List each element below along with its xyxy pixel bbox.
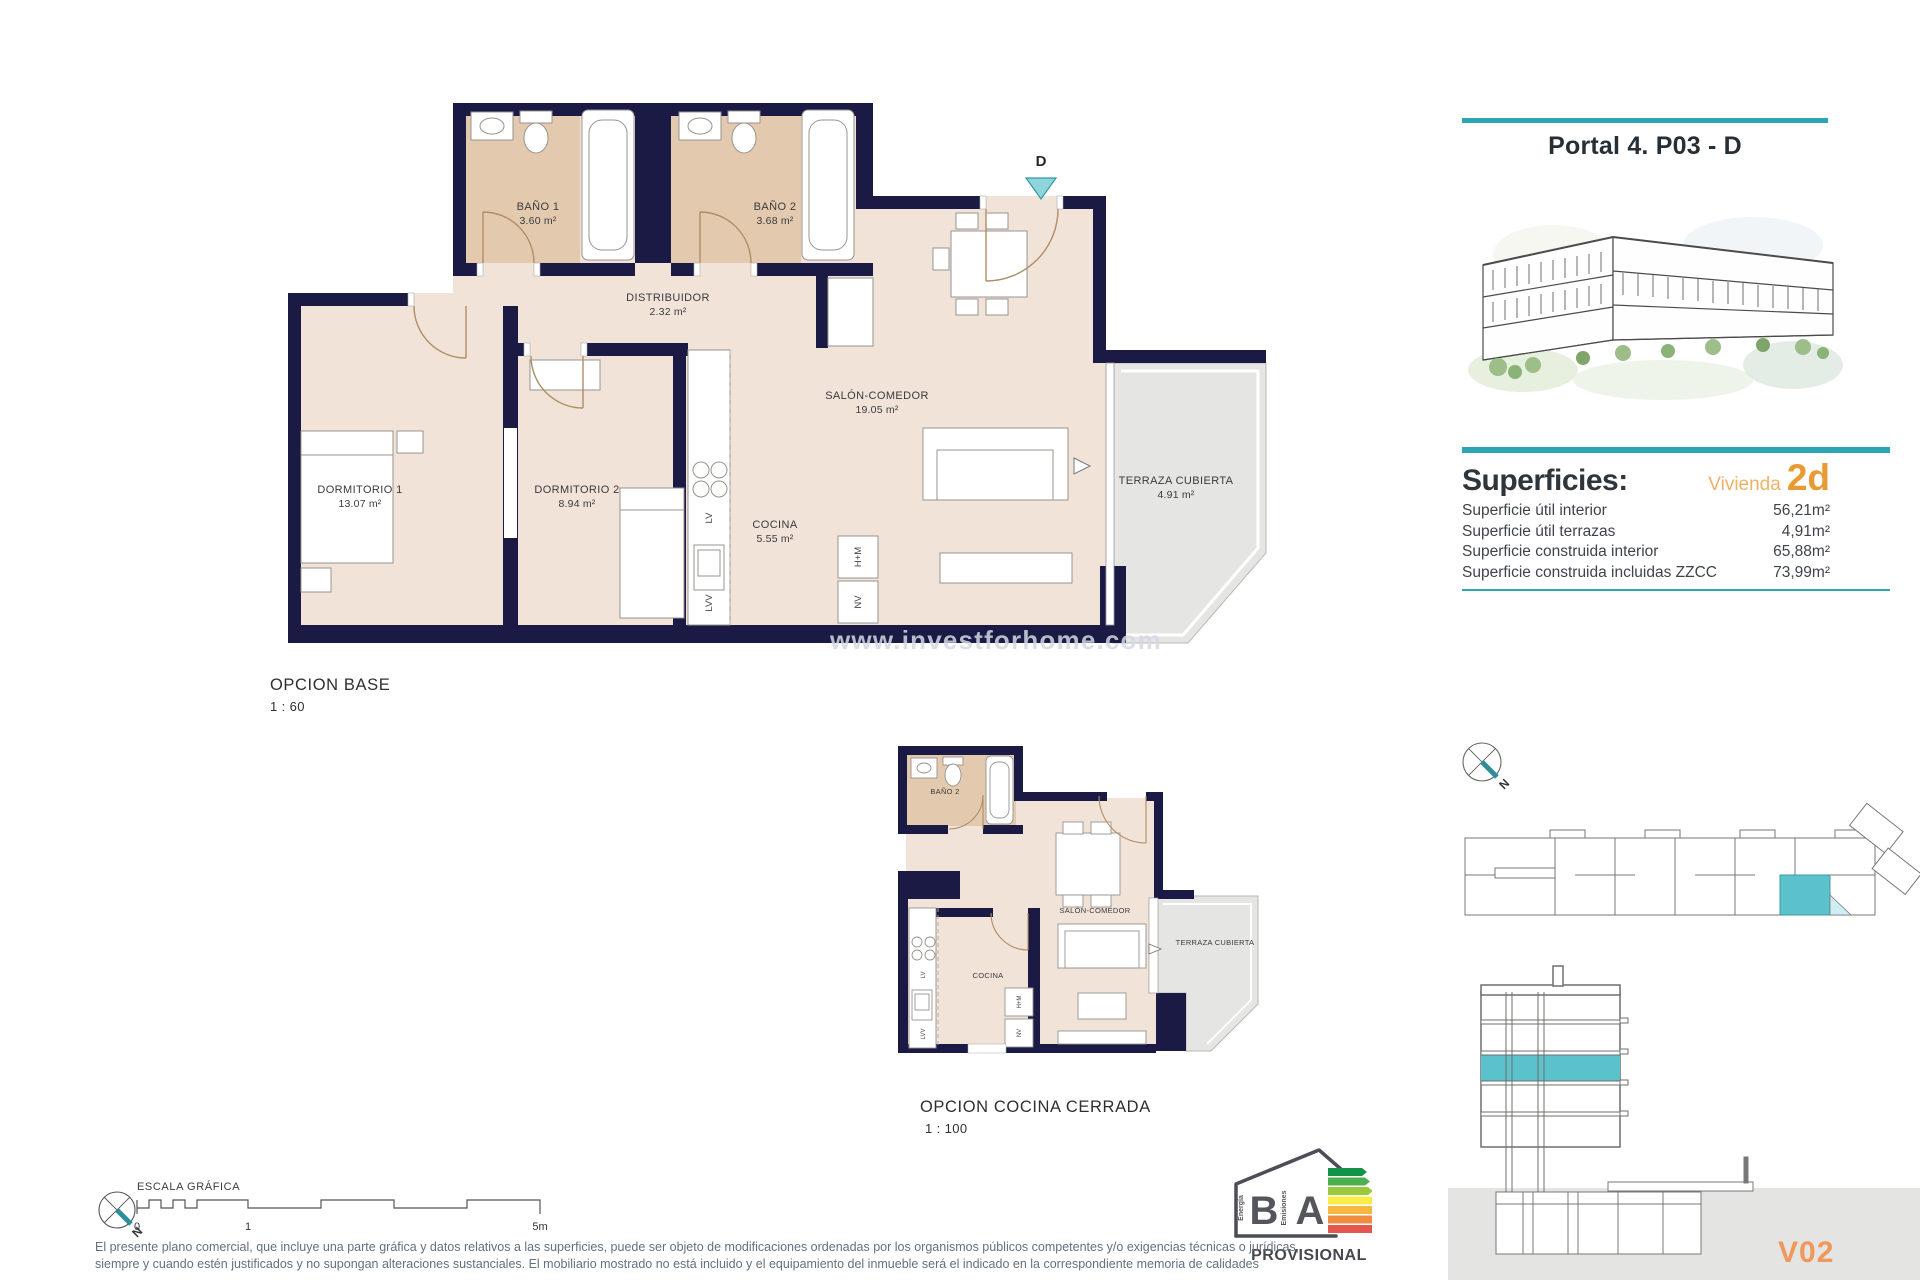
room-label-dormitorio1: DORMITORIO 1 13.07 m²	[317, 483, 402, 511]
vivienda-tag: Vivienda 2d	[1708, 457, 1830, 499]
superficies-row: Superficie útil interior56,21m²	[1462, 501, 1890, 522]
scale-tick-5m: 5m	[532, 1221, 547, 1233]
scale-bar-graphic	[137, 1200, 540, 1214]
energy-letter-b: B	[1250, 1189, 1279, 1233]
building-sketch	[1463, 175, 1849, 425]
disclaimer-line1: El presente plano comercial, que incluye…	[95, 1239, 1335, 1256]
room-label-distribuidor: DISTRIBUIDOR 2.32 m²	[626, 291, 710, 319]
watermark: www.investforhome.com	[830, 625, 1162, 656]
superficies-row: Superficie construida interior65,88m²	[1462, 542, 1890, 563]
svg-text:LVV: LVV	[921, 1029, 927, 1040]
vivienda-label: Vivienda	[1708, 474, 1781, 496]
superficies-title: Superficies:	[1462, 464, 1628, 498]
entry-marker: D	[1026, 153, 1056, 199]
floor-plan-sheet: { "colors": { "teal": "#2CA6B2", "teal_l…	[0, 0, 1920, 1280]
compass-right-icon: N	[1458, 736, 1538, 808]
site-plan	[1455, 800, 1920, 935]
superficies-accent-bar	[1462, 447, 1890, 453]
superficies-row: Superficie útil terrazas4,91m²	[1462, 522, 1890, 543]
energy-letter-a: A	[1296, 1189, 1325, 1233]
svg-text:H+M: H+M	[853, 547, 864, 567]
room-label-bano1: BAÑO 1 3.60 m²	[517, 200, 560, 228]
title-accent-bar	[1462, 118, 1828, 123]
small-room-label-bano2: BAÑO 2	[930, 787, 959, 796]
energy-arrows-icon	[1328, 1168, 1372, 1233]
room-label-bano2: BAÑO 2 3.68 m²	[754, 200, 797, 228]
vivienda-code: 2d	[1787, 457, 1830, 499]
small-plan-scale: 1 : 100	[925, 1121, 968, 1136]
scale-tick-1: 1	[245, 1221, 251, 1233]
main-plan-floors	[288, 103, 1266, 643]
svg-text:N: N	[129, 1224, 145, 1240]
room-label-salon: SALÓN-COMEDOR 19.05 m²	[825, 389, 929, 417]
superficies-row: Superficie construida incluidas ZZCC73,9…	[1462, 563, 1890, 584]
svg-text:LVV: LVV	[704, 594, 715, 612]
small-room-label-terraza: TERRAZA CUBIERTA	[1176, 938, 1255, 947]
svg-text:LV: LV	[921, 972, 927, 979]
svg-text:LV: LV	[704, 512, 715, 524]
energy-label-energia: Energía	[1238, 1195, 1245, 1221]
entry-triangle-icon	[1026, 178, 1056, 199]
scale-bar: 0 1 5m	[95, 1178, 565, 1240]
disclaimer-line2: siempre y cuando estén justificados y no…	[95, 1256, 1335, 1273]
superficies-rows: Superficie útil interior56,21m² Superfic…	[1462, 501, 1890, 583]
svg-text:N: N	[1496, 776, 1512, 792]
superficies-block: Superficies: Vivienda 2d Superficie útil…	[1462, 447, 1890, 591]
energy-label-emisiones: Emisiones	[1281, 1190, 1288, 1225]
main-plan-scale: 1 : 60	[270, 699, 305, 714]
svg-text:H+M: H+M	[1017, 996, 1023, 1009]
disclaimer: El presente plano comercial, que incluye…	[95, 1239, 1335, 1273]
small-room-label-cocina: COCINA	[973, 971, 1004, 980]
drawing-code: V02	[1778, 1236, 1834, 1270]
entry-letter: D	[1036, 153, 1047, 170]
title-block: Portal 4. P03 - D	[1462, 118, 1828, 161]
building-section	[1448, 952, 1920, 1280]
room-label-cocina: COCINA 5.55 m²	[752, 518, 797, 546]
superficies-bottom-rule	[1462, 589, 1890, 591]
section-highlight-floor	[1481, 1055, 1620, 1081]
small-room-label-salon: SALÓN-COMEDOR	[1060, 906, 1131, 915]
svg-text:NV: NV	[853, 595, 864, 609]
main-plan-caption: OPCION BASE	[270, 676, 390, 695]
page-title: Portal 4. P03 - D	[1462, 132, 1828, 161]
svg-text:NV: NV	[1017, 1029, 1023, 1037]
room-label-terraza: TERRAZA CUBIERTA 4.91 m²	[1119, 474, 1234, 502]
small-plan-caption: OPCION COCINA CERRADA	[920, 1098, 1151, 1117]
room-label-dormitorio2: DORMITORIO 2 8.94 m²	[534, 483, 619, 511]
